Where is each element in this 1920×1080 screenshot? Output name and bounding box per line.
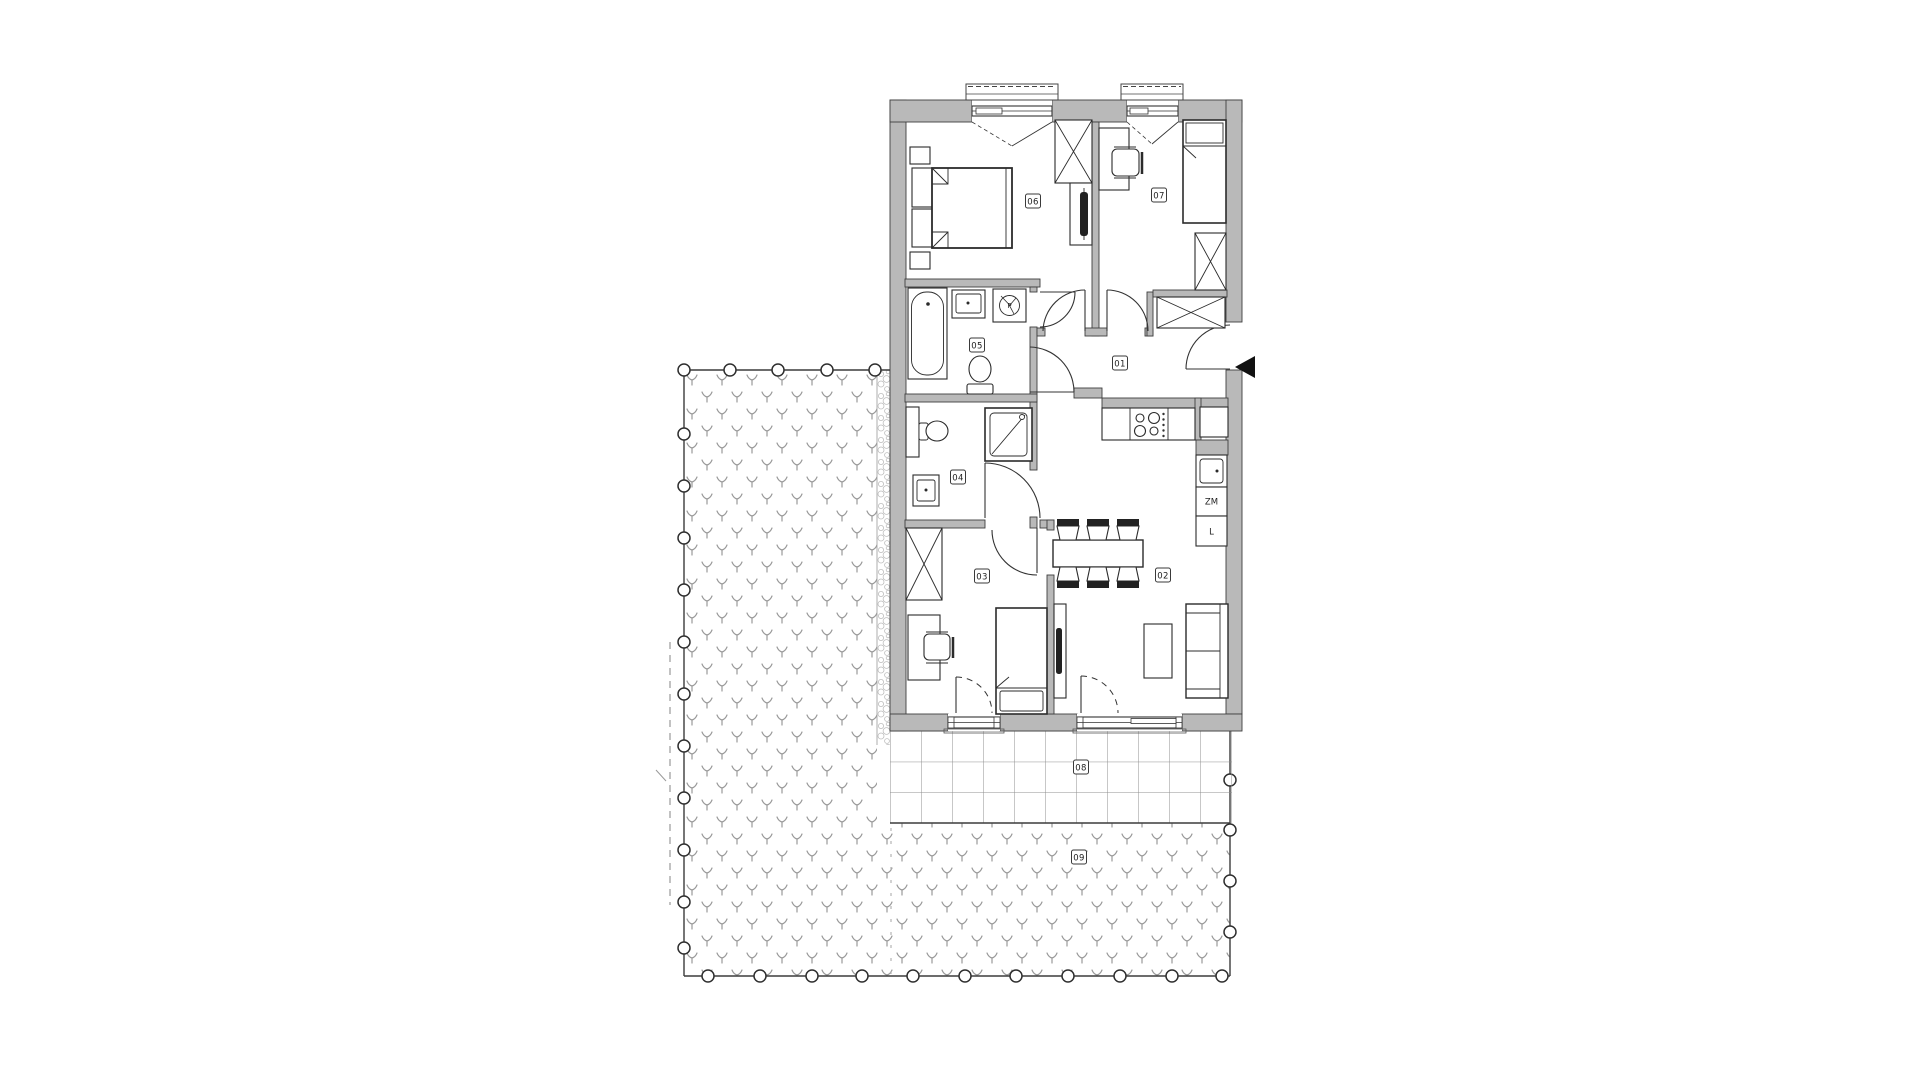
room-label-03: 03	[975, 569, 990, 583]
room-label-09: 09	[1072, 850, 1087, 864]
nightstand	[912, 168, 933, 207]
chair	[1057, 519, 1079, 540]
cabinet	[910, 147, 930, 164]
wall-outer-left	[890, 100, 906, 731]
wall-hall-stub-2	[1085, 328, 1107, 336]
wall-bedroom07-hall	[1153, 290, 1227, 297]
wardrobe	[1195, 233, 1226, 290]
terrace	[890, 731, 1232, 823]
wall-outer-top-1	[890, 100, 972, 122]
hall-wardrobe	[1157, 297, 1225, 328]
wall-outer-bottom-2	[1000, 714, 1077, 731]
wall-hall-living-stub	[1074, 388, 1102, 398]
apartment-building: P	[890, 84, 1255, 733]
tv-screen	[1080, 192, 1088, 236]
floor-plan-page: P	[0, 0, 1920, 1080]
room-label-08: 08	[1074, 760, 1089, 774]
wardrobe	[1055, 120, 1092, 183]
washing-machine-label: P	[1007, 302, 1011, 310]
wall-outer-bottom-3	[1182, 714, 1242, 731]
pillow	[1000, 691, 1043, 711]
fixed-pane	[1131, 719, 1176, 724]
floor-plan-drawing: P	[0, 0, 1920, 1080]
dining-table	[1053, 540, 1143, 567]
kitchen-counter	[1102, 408, 1195, 440]
kitchen-corner-cabinet	[1200, 407, 1228, 437]
wall-bedrooms-divider	[1092, 122, 1099, 336]
svg-text:04: 04	[952, 474, 963, 484]
coffee-table	[1144, 624, 1172, 678]
svg-text:08: 08	[1075, 764, 1086, 774]
single-bed	[1183, 120, 1226, 223]
cabinet	[910, 252, 930, 269]
svg-text:01: 01	[1114, 360, 1125, 370]
svg-text:07: 07	[1153, 192, 1164, 202]
wall-bath-right	[1030, 327, 1037, 402]
svg-text:05: 05	[971, 342, 982, 352]
sofa	[1186, 604, 1228, 698]
chair	[1117, 567, 1139, 588]
wc-sink	[913, 475, 939, 506]
wall-bath-wc	[905, 394, 1037, 402]
svg-text:06: 06	[1027, 198, 1038, 208]
room-label-04: 04	[951, 470, 966, 484]
wall-bedroom06-bath	[905, 279, 1040, 287]
wall-wc-room03	[905, 520, 985, 528]
room-label-06: 06	[1026, 194, 1041, 208]
svg-text:03: 03	[976, 573, 987, 583]
bathtub	[908, 288, 947, 379]
wall-hall-stub-1	[1037, 328, 1045, 336]
dining-chairs-bottom	[1057, 567, 1139, 588]
dishwasher-label: ZM	[1205, 498, 1218, 508]
tv-screen	[1056, 628, 1062, 674]
nightstand	[912, 209, 933, 247]
wall-room03-living	[1047, 575, 1054, 714]
wall-outer-top-2	[1052, 100, 1127, 122]
wall-outer-bottom-1	[890, 714, 948, 731]
dishwasher-cell: ZM	[1196, 487, 1227, 516]
pillow	[1186, 123, 1223, 143]
fridge-cell: L	[1196, 516, 1227, 546]
room-label-02: 02	[1156, 568, 1171, 582]
wall-wc-right-bottom	[1030, 517, 1037, 528]
tv-unit	[1070, 183, 1092, 245]
wall-outer-right-upper	[1226, 100, 1242, 322]
dining-chairs-top	[1057, 519, 1139, 540]
washing-machine: P	[993, 289, 1026, 322]
bathroom-sink	[952, 290, 985, 318]
svg-text:09: 09	[1073, 854, 1084, 864]
terrace-tiles	[890, 731, 1232, 823]
svg-text:02: 02	[1157, 572, 1168, 582]
tv-bench	[1054, 604, 1066, 698]
desk-chair	[924, 632, 953, 663]
desk-chair	[1112, 147, 1142, 178]
wall-bath-right-stub	[1030, 287, 1037, 292]
fridge-label: L	[1209, 528, 1214, 538]
boundary-tick	[656, 770, 666, 781]
room-label-01: 01	[1113, 356, 1128, 370]
chair	[1057, 567, 1079, 588]
kitchen-sink-cabinet	[1196, 455, 1227, 487]
wall-room03-top-corner	[1047, 520, 1054, 530]
shower	[985, 408, 1032, 461]
toilet-bathroom	[967, 356, 993, 394]
chair	[1087, 519, 1109, 540]
chair	[1117, 519, 1139, 540]
hall-furniture	[1157, 297, 1225, 328]
gravel-strip	[877, 370, 890, 745]
chair	[1087, 567, 1109, 588]
wardrobe	[906, 528, 942, 600]
room-label-07: 07	[1152, 188, 1167, 202]
single-bed	[996, 608, 1047, 714]
room-label-05: 05	[970, 338, 985, 352]
kitchen-column-stub	[1196, 440, 1228, 455]
